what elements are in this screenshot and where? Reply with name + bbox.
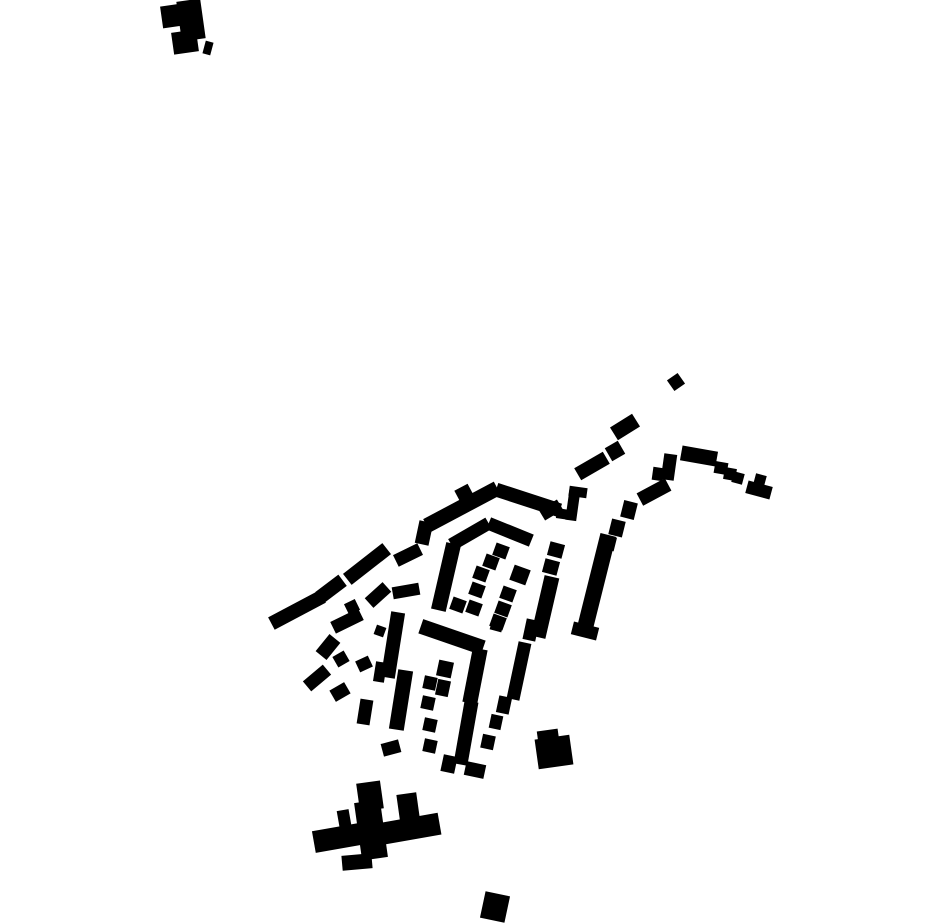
building-footprint — [507, 641, 532, 700]
building-footprint — [436, 660, 454, 679]
building-footprint — [465, 599, 483, 616]
building-footprint — [420, 695, 435, 710]
building-footprint — [329, 682, 350, 702]
building-footprint — [330, 608, 364, 633]
building-footprint — [171, 29, 199, 54]
building-footprint — [661, 453, 677, 481]
building-footprint — [374, 625, 387, 638]
building-footprint — [454, 700, 479, 765]
building-footprint — [354, 799, 388, 860]
building-footprint — [462, 648, 487, 705]
building-footprint — [620, 500, 638, 520]
building-footprint — [547, 541, 565, 558]
building-footprint — [449, 596, 467, 613]
building-footprint — [160, 4, 184, 29]
building-footprint — [680, 445, 718, 466]
building-footprint — [337, 809, 352, 827]
building-footprint — [489, 714, 504, 730]
building-footprint — [464, 761, 486, 779]
building-footprint — [574, 452, 610, 481]
building-footprint — [268, 590, 326, 630]
building-footprint — [522, 618, 539, 641]
map-canvas — [0, 0, 930, 924]
building-footprint — [303, 665, 331, 692]
building-footprint — [422, 675, 437, 690]
building-footprint — [468, 581, 486, 598]
building-footprint — [422, 717, 437, 732]
building-footprint — [396, 792, 419, 820]
building-footprint — [542, 558, 560, 575]
building-footprint — [202, 41, 213, 56]
building-footprint — [365, 582, 392, 608]
building-footprint — [608, 519, 625, 538]
building-footprint — [652, 467, 665, 481]
building-footprint — [440, 754, 457, 774]
building-footprint — [332, 651, 349, 668]
building-footprint — [381, 739, 402, 756]
building-footprint — [486, 517, 534, 546]
building-footprint — [610, 414, 640, 440]
building-footprint — [499, 585, 517, 602]
building-footprint — [480, 734, 496, 750]
building-footprint — [435, 679, 451, 697]
building-footprint — [343, 543, 391, 585]
building-footprint — [509, 565, 530, 586]
building-footprint — [422, 738, 437, 753]
building-footprint — [389, 669, 413, 731]
building-footprint — [667, 373, 685, 391]
building-footprint — [480, 891, 510, 923]
building-footprint — [373, 661, 387, 682]
figure-ground-map — [0, 0, 930, 924]
building-footprint — [357, 699, 374, 726]
building-footprint — [312, 823, 362, 853]
building-footprint — [393, 543, 423, 567]
building-footprint — [472, 565, 490, 582]
building-footprint — [355, 656, 373, 673]
building-footprint — [605, 441, 625, 461]
building-footprint — [637, 478, 672, 505]
building-footprint — [415, 520, 433, 545]
building-footprint — [496, 695, 512, 714]
building-footprint — [392, 583, 421, 600]
building-footprint — [571, 622, 599, 641]
